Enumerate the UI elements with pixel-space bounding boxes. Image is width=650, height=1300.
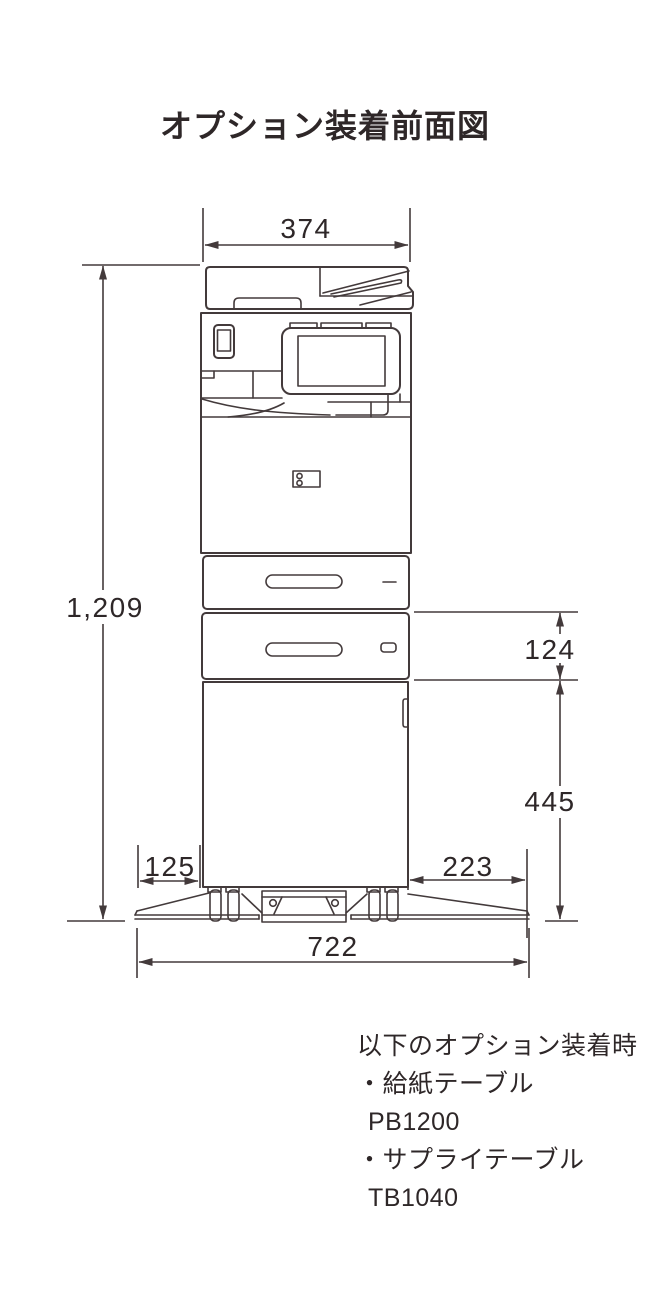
dimension-supply-table-height: 445 bbox=[524, 681, 578, 921]
option-item-label: ・給紙テーブル bbox=[357, 1065, 638, 1103]
dimension-top-width: 374 bbox=[203, 208, 410, 262]
dimension-label-total-width: 722 bbox=[307, 931, 358, 962]
option-notes-heading: 以下のオプション装着時 bbox=[357, 1027, 638, 1065]
dimension-feed-table-height: 124 bbox=[414, 612, 578, 680]
diagram-page: オプション装着前面図 bbox=[0, 0, 650, 1300]
optional-feed-table bbox=[202, 613, 409, 679]
dimension-label-right-foot: 223 bbox=[442, 851, 493, 882]
dimension-label-total-height: 1,209 bbox=[66, 592, 144, 623]
card-reader bbox=[214, 325, 234, 358]
control-panel-section bbox=[201, 313, 411, 553]
base-plate bbox=[242, 891, 367, 922]
dimension-label-left-foot: 125 bbox=[144, 851, 195, 882]
dimension-right-foot: 223 bbox=[408, 845, 527, 938]
dimension-label-feed-table-height: 124 bbox=[524, 634, 575, 665]
option-item-model: TB1040 bbox=[357, 1179, 638, 1217]
dimension-total-width: 722 bbox=[137, 928, 529, 978]
dimension-left-foot: 125 bbox=[138, 845, 200, 888]
adf-unit bbox=[206, 267, 413, 309]
stabilizer-foot-left bbox=[135, 893, 259, 919]
lid-handle bbox=[234, 298, 301, 309]
dimension-label-top-width: 374 bbox=[280, 213, 331, 244]
dimension-label-supply-table-height: 445 bbox=[524, 786, 575, 817]
caster-base bbox=[135, 887, 529, 922]
paper-drawer-1 bbox=[203, 556, 409, 609]
stabilizer-foot-right bbox=[351, 894, 529, 919]
option-item-label: ・サプライテーブル bbox=[357, 1141, 638, 1179]
option-item-model: PB1200 bbox=[357, 1103, 638, 1141]
supply-table-cabinet bbox=[203, 682, 408, 887]
printer-front-view bbox=[135, 267, 529, 922]
option-notes: 以下のオプション装着時 ・給紙テーブル PB1200 ・サプライテーブル TB1… bbox=[357, 1027, 638, 1217]
dimension-total-height: 1,209 bbox=[66, 265, 200, 921]
front-emblem bbox=[293, 471, 320, 487]
